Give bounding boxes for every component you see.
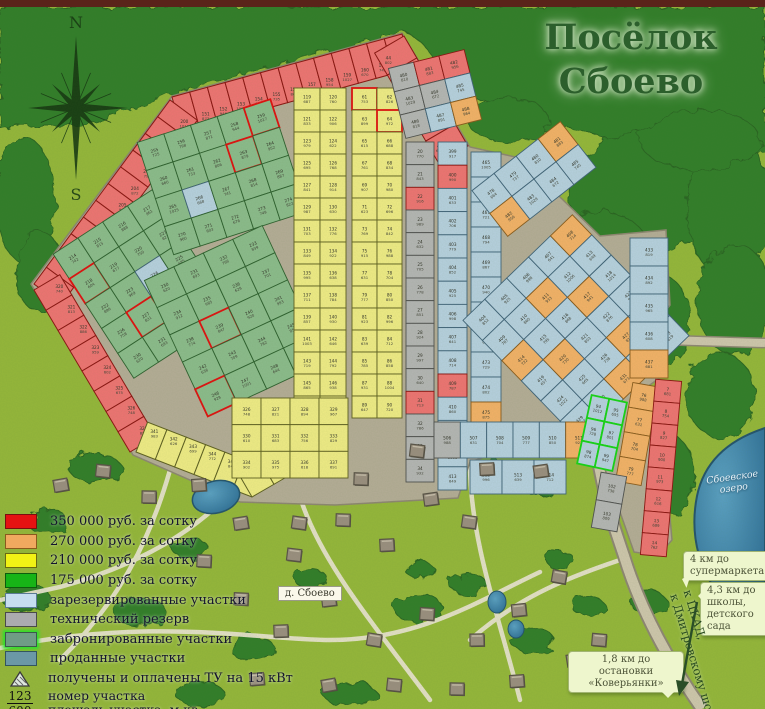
legend-item-label: 350 000 руб. за сотку [50,514,197,529]
legend-color-chip [5,514,37,529]
plot-fraction-icon: 123600 [5,690,35,709]
legend-item-reserved: зарезервированные участки [5,590,293,610]
legend-item-price-210: 210 000 руб. за сотку [5,551,293,571]
legend-item-label: проданные участки [50,651,185,666]
legend-item-plot-fraction: 123600номер участкаплощадь участка, м.кв… [5,688,293,709]
legend-color-chip [5,651,37,666]
legend-item-booked: забронированные участки [5,630,293,650]
distance-bubble-school: 4,3 км до школы, детского сада [700,582,765,636]
distance-bubble-bus-stop: 1,8 км до остановки «Коверьянки» [568,651,684,693]
legend-item-label: технический резерв [50,612,189,627]
highway-arrow-icon [676,598,702,700]
legend-item-label: получены и оплачены ТУ на 15 кВт [48,671,293,686]
legend-item-label: 175 000 руб. за сотку [50,573,197,588]
legend-item-label: 210 000 руб. за сотку [50,553,197,568]
legend-item-sold: проданные участки [5,649,293,669]
legend: 350 000 руб. за сотку270 000 руб. за сот… [5,512,293,709]
legend-item-tu: получены и оплачены ТУ на 15 кВт [5,669,293,689]
legend-item-label: зарезервированные участки [50,593,246,608]
distance-bubble-supermarket: 4 км до супермаркета [683,551,765,581]
legend-item-price-350: 350 000 руб. за сотку [5,512,293,532]
legend-color-chip [5,593,37,608]
title-line1: Посёлок [511,16,751,60]
legend-item-price-175: 175 000 руб. за сотку [5,571,293,591]
legend-color-chip [5,632,37,647]
legend-color-chip [5,612,37,627]
legend-color-chip [5,534,37,549]
legend-item-price-270: 270 000 руб. за сотку [5,532,293,552]
legend-item-label: номер участкаплощадь участка, м.кв. [48,689,202,709]
legend-item-label: забронированные участки [50,632,232,647]
legend-item-tech-reserve: технический резерв [5,610,293,630]
legend-color-chip [5,573,37,588]
legend-item-label: 270 000 руб. за сотку [50,534,197,549]
tu-triangle-icon [5,670,35,688]
top-border-bar [0,0,765,7]
title-line2: Сбоево [511,60,751,104]
legend-color-chip [5,553,37,568]
map-page: 1508001518731529461531019154662155735156… [0,0,765,709]
page-title: Посёлок Сбоево [511,16,751,104]
